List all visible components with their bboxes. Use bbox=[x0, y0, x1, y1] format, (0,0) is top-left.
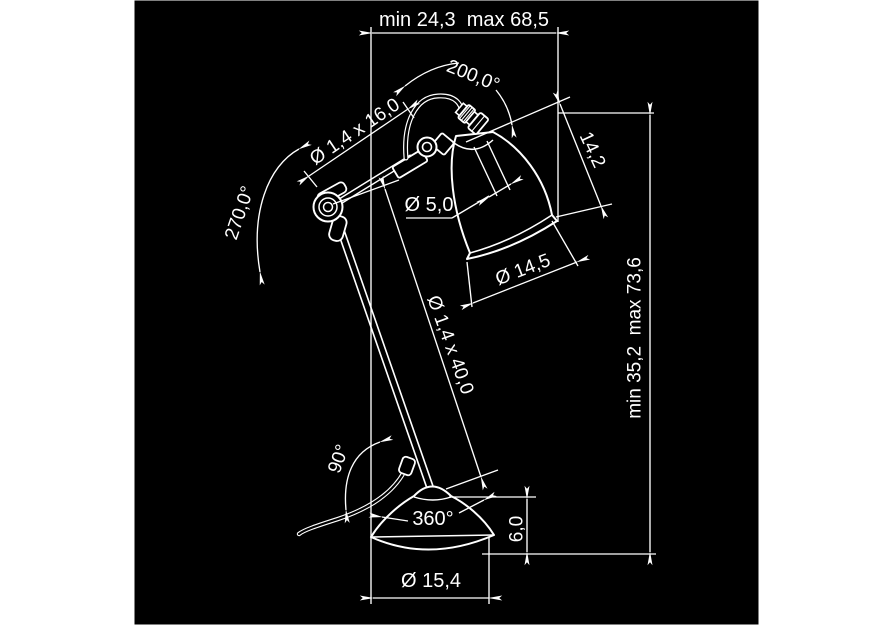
dim-base-rotation: 360° bbox=[412, 508, 453, 530]
dim-overall-height: min 35,2 max 73,6 bbox=[625, 257, 646, 419]
dim-socket-tube-diameter: Ø 5,0 bbox=[405, 194, 454, 216]
dim-top-width: min 24,3 max 68,5 bbox=[379, 9, 549, 31]
dim-base-height: 6,0 bbox=[507, 516, 528, 542]
page: min 24,3 max 68,5 200,0° Ø 1,4 x 16,0 27… bbox=[0, 0, 893, 625]
dim-base-diameter: Ø 15,4 bbox=[401, 570, 461, 592]
lamp-technical-drawing: min 24,3 max 68,5 200,0° Ø 1,4 x 16,0 27… bbox=[0, 0, 893, 625]
